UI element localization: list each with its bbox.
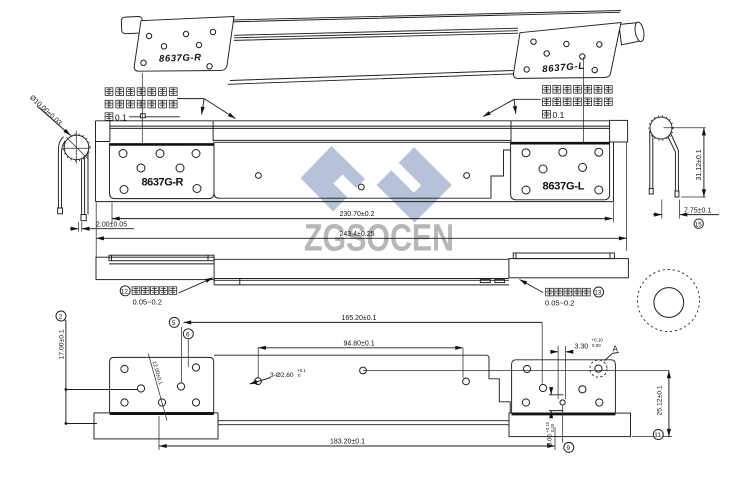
svg-text:0.05~0.2: 0.05~0.2	[133, 298, 162, 307]
svg-text:12: 12	[121, 288, 129, 295]
svg-text:15: 15	[695, 221, 703, 228]
svg-text:7.75±0.1: 7.75±0.1	[684, 208, 711, 215]
svg-text:3.00: 3.00	[548, 434, 554, 446]
svg-text:165.20±0.1: 165.20±0.1	[342, 315, 377, 322]
svg-text:17.00±0.1: 17.00±0.1	[59, 329, 66, 359]
svg-text:+0.10: +0.10	[592, 338, 604, 343]
svg-text:0.00: 0.00	[592, 343, 601, 348]
svg-text:0: 0	[298, 373, 301, 378]
svg-text:0.1: 0.1	[553, 110, 565, 120]
svg-text:A: A	[613, 345, 619, 354]
svg-text:25.12±0.1: 25.12±0.1	[656, 385, 663, 415]
svg-text:0.05~0.2: 0.05~0.2	[545, 299, 574, 308]
svg-text:3-Ø2.60: 3-Ø2.60	[270, 372, 294, 379]
svg-text:8637G-R: 8637G-R	[159, 52, 201, 64]
svg-text:6: 6	[186, 331, 190, 338]
svg-text:11: 11	[654, 432, 661, 439]
svg-text:0.00: 0.00	[550, 423, 555, 432]
svg-text:13: 13	[594, 290, 602, 297]
svg-text:Ø10.00±0.03: Ø10.00±0.03	[28, 94, 62, 127]
svg-text:8637G-R: 8637G-R	[142, 177, 184, 189]
svg-text:243.4±0.25: 243.4±0.25	[340, 231, 375, 238]
svg-text:2.00±0.05: 2.00±0.05	[96, 222, 127, 229]
svg-text:230.70±0.2: 230.70±0.2	[340, 211, 375, 218]
svg-text:183.20±0.1: 183.20±0.1	[330, 439, 365, 446]
svg-text:3.30: 3.30	[575, 344, 589, 351]
svg-text:31.12±0.1: 31.12±0.1	[696, 149, 703, 180]
svg-text:2: 2	[59, 314, 63, 321]
svg-text:8637G-L: 8637G-L	[543, 181, 585, 193]
svg-text:5: 5	[172, 320, 176, 327]
svg-text:9: 9	[567, 445, 571, 452]
svg-text:94.80±0.1: 94.80±0.1	[344, 341, 375, 348]
